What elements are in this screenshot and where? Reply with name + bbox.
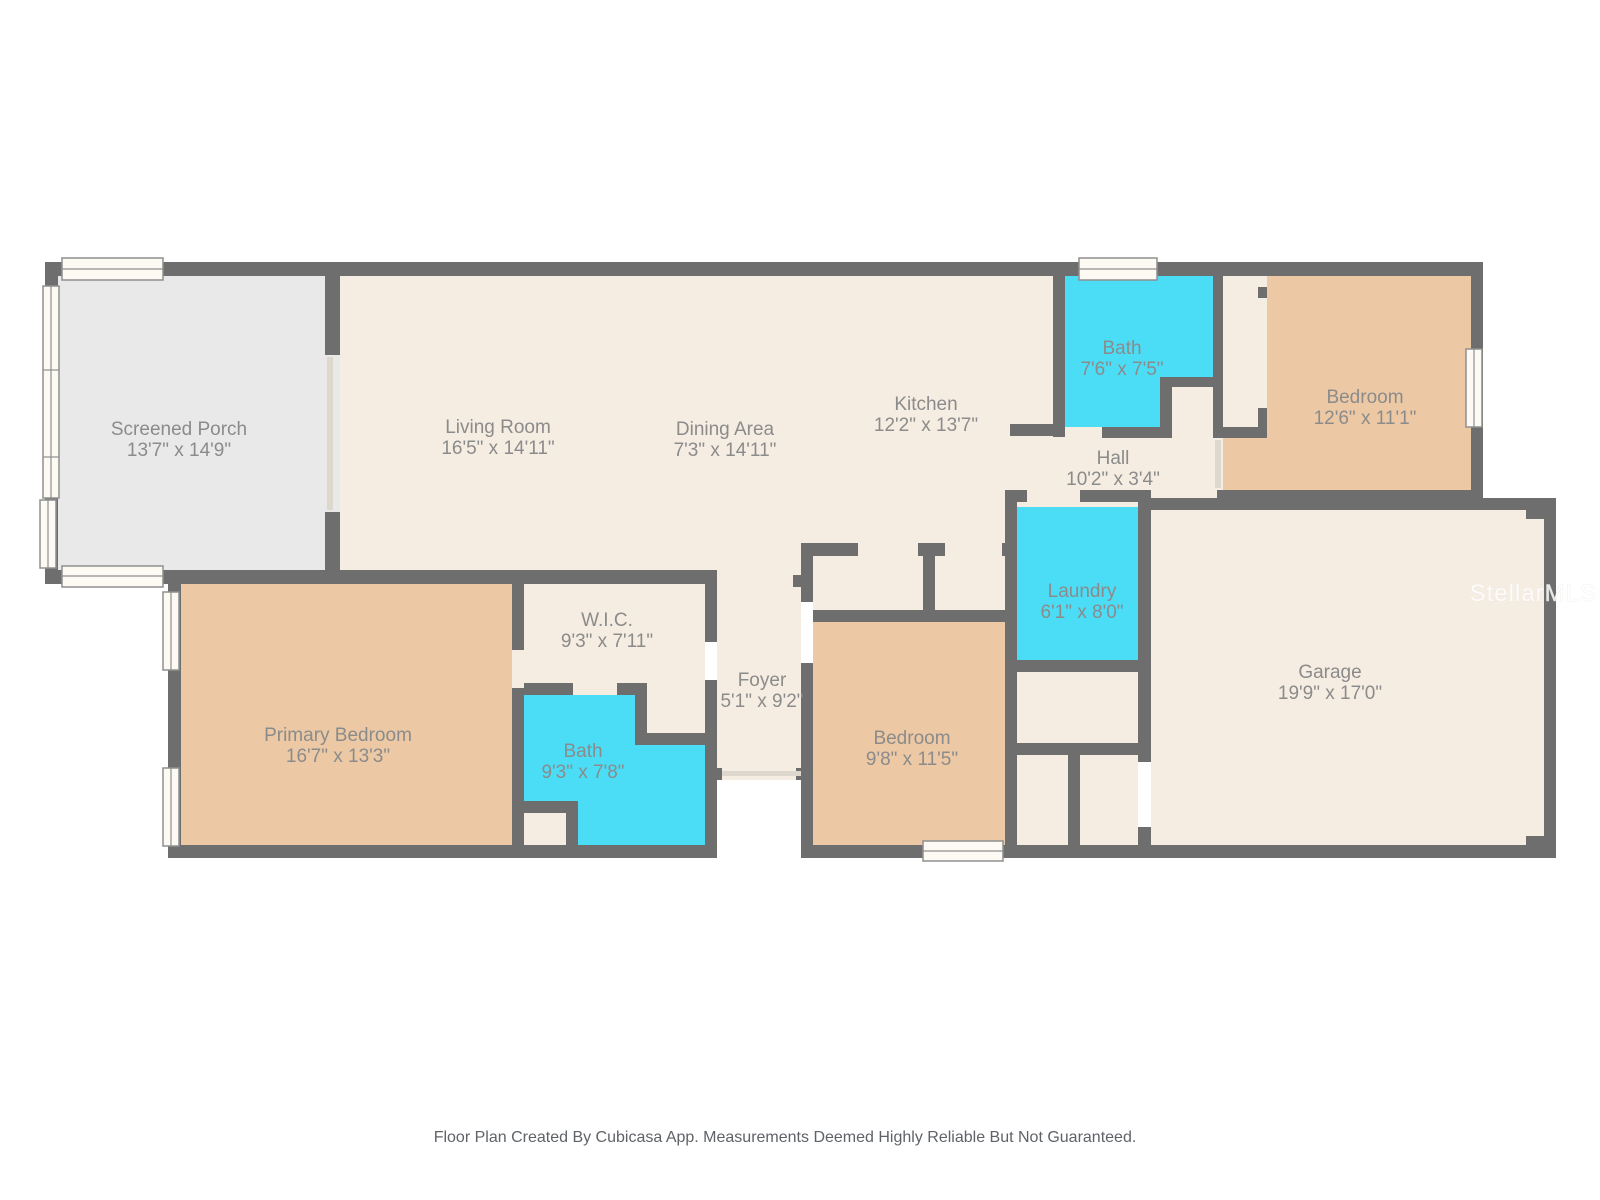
closet-row-floor bbox=[813, 556, 1017, 610]
hall-alcove-floor bbox=[1172, 387, 1213, 427]
room-dims: 6'1" x 8'0" bbox=[1040, 602, 1123, 623]
room-name: Kitchen bbox=[894, 394, 957, 415]
room-name: Living Room bbox=[445, 417, 551, 438]
room-name: Foyer bbox=[738, 670, 787, 691]
bath-primary-closet-floor bbox=[524, 813, 566, 845]
footer-disclaimer: Floor Plan Created By Cubicasa App. Meas… bbox=[434, 1129, 1137, 1146]
floor-plan-page: Screened Porch 13'7" x 14'9" Living Room… bbox=[0, 0, 1600, 1200]
room-name: Screened Porch bbox=[111, 419, 247, 440]
bedroom-upper-door bbox=[1215, 440, 1221, 488]
room-name: Bedroom bbox=[1326, 387, 1403, 408]
stellar-mls-watermark: StellarMLS bbox=[1470, 580, 1597, 607]
window bbox=[1466, 349, 1482, 427]
room-dining-area-label: Dining Area 7'3" x 14'11" bbox=[674, 419, 777, 461]
window bbox=[923, 841, 1003, 861]
floor-plan-canvas: Screened Porch 13'7" x 14'9" Living Room… bbox=[0, 0, 1600, 1200]
room-dims: 9'3" x 7'11" bbox=[561, 631, 653, 652]
room-dims: 7'3" x 14'11" bbox=[674, 440, 777, 461]
window bbox=[163, 768, 179, 846]
room-primary-bedroom-floor bbox=[181, 584, 512, 845]
room-dims: 12'6" x 11'1" bbox=[1314, 408, 1417, 429]
room-screened-porch-label: Screened Porch 13'7" x 14'9" bbox=[111, 419, 247, 461]
room-dims: 9'8" x 11'5" bbox=[866, 749, 958, 770]
room-dims: 13'7" x 14'9" bbox=[127, 440, 231, 461]
room-dims: 16'7" x 13'3" bbox=[286, 746, 390, 767]
room-name: Hall bbox=[1097, 448, 1130, 469]
room-name: Garage bbox=[1298, 662, 1361, 683]
window bbox=[163, 592, 179, 670]
room-dims: 16'5" x 14'11" bbox=[441, 438, 554, 459]
room-name: Bath bbox=[1102, 338, 1141, 359]
bedroom-upper-closet-floor bbox=[1223, 276, 1258, 427]
room-dims: 19'9" x 17'0" bbox=[1278, 683, 1382, 704]
room-dims: 9'3" x 7'8" bbox=[541, 762, 624, 783]
room-dims: 12'2" x 13'7" bbox=[874, 415, 978, 436]
room-primary-bedroom-label: Primary Bedroom 16'7" x 13'3" bbox=[264, 725, 412, 767]
room-bedroom-middle-label: Bedroom 9'8" x 11'5" bbox=[866, 728, 958, 770]
room-dims: 5'1" x 9'2" bbox=[720, 691, 803, 712]
room-dims: 10'2" x 3'4" bbox=[1066, 469, 1160, 490]
room-living-room-label: Living Room 16'5" x 14'11" bbox=[441, 417, 554, 459]
window bbox=[40, 500, 56, 568]
window bbox=[1079, 258, 1157, 280]
room-foyer-floor bbox=[717, 553, 801, 780]
room-laundry-label: Laundry 6'1" x 8'0" bbox=[1040, 581, 1123, 623]
room-dims: 7'6" x 7'5" bbox=[1080, 359, 1163, 380]
porch-sliding-door bbox=[327, 357, 333, 510]
room-name: Primary Bedroom bbox=[264, 725, 412, 746]
room-bedroom-upper-label: Bedroom 12'6" x 11'1" bbox=[1314, 387, 1417, 429]
window bbox=[62, 566, 163, 587]
front-entry-door bbox=[722, 771, 801, 776]
room-name: Dining Area bbox=[676, 419, 775, 440]
window bbox=[62, 258, 163, 280]
room-name: Bath bbox=[563, 741, 602, 762]
room-name: W.I.C. bbox=[581, 610, 633, 631]
room-name: Bedroom bbox=[873, 728, 950, 749]
room-name: Laundry bbox=[1048, 581, 1117, 602]
window bbox=[43, 286, 59, 498]
